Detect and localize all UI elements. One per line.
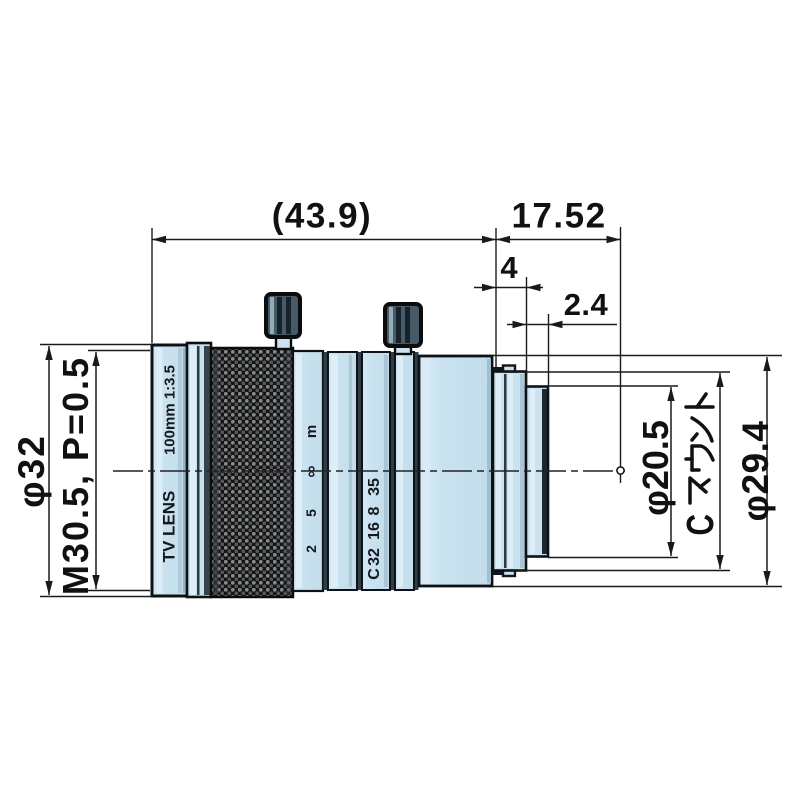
svg-text:M30.5, P=0.5: M30.5, P=0.5 [55,356,96,595]
svg-text:32: 32 [366,548,383,566]
svg-text:4: 4 [500,250,518,285]
svg-text:17.52: 17.52 [511,197,606,236]
svg-text:TV LENS: TV LENS [160,491,179,563]
svg-text:C: C [680,514,722,535]
svg-text:C: C [366,568,383,580]
svg-text:m: m [303,425,320,438]
svg-text:16: 16 [366,522,383,540]
svg-text:5: 5 [303,509,319,517]
svg-text:φ20.5: φ20.5 [635,420,676,516]
svg-text:φ32: φ32 [11,434,52,508]
svg-text:φ29.4: φ29.4 [735,421,776,522]
svg-text:100mm 1:3.5: 100mm 1:3.5 [162,365,179,455]
svg-text:(43.9): (43.9) [272,197,372,236]
svg-text:35: 35 [366,478,383,496]
svg-text:2.4: 2.4 [564,287,609,322]
svg-text:2: 2 [303,545,319,553]
svg-text:8: 8 [366,506,383,515]
